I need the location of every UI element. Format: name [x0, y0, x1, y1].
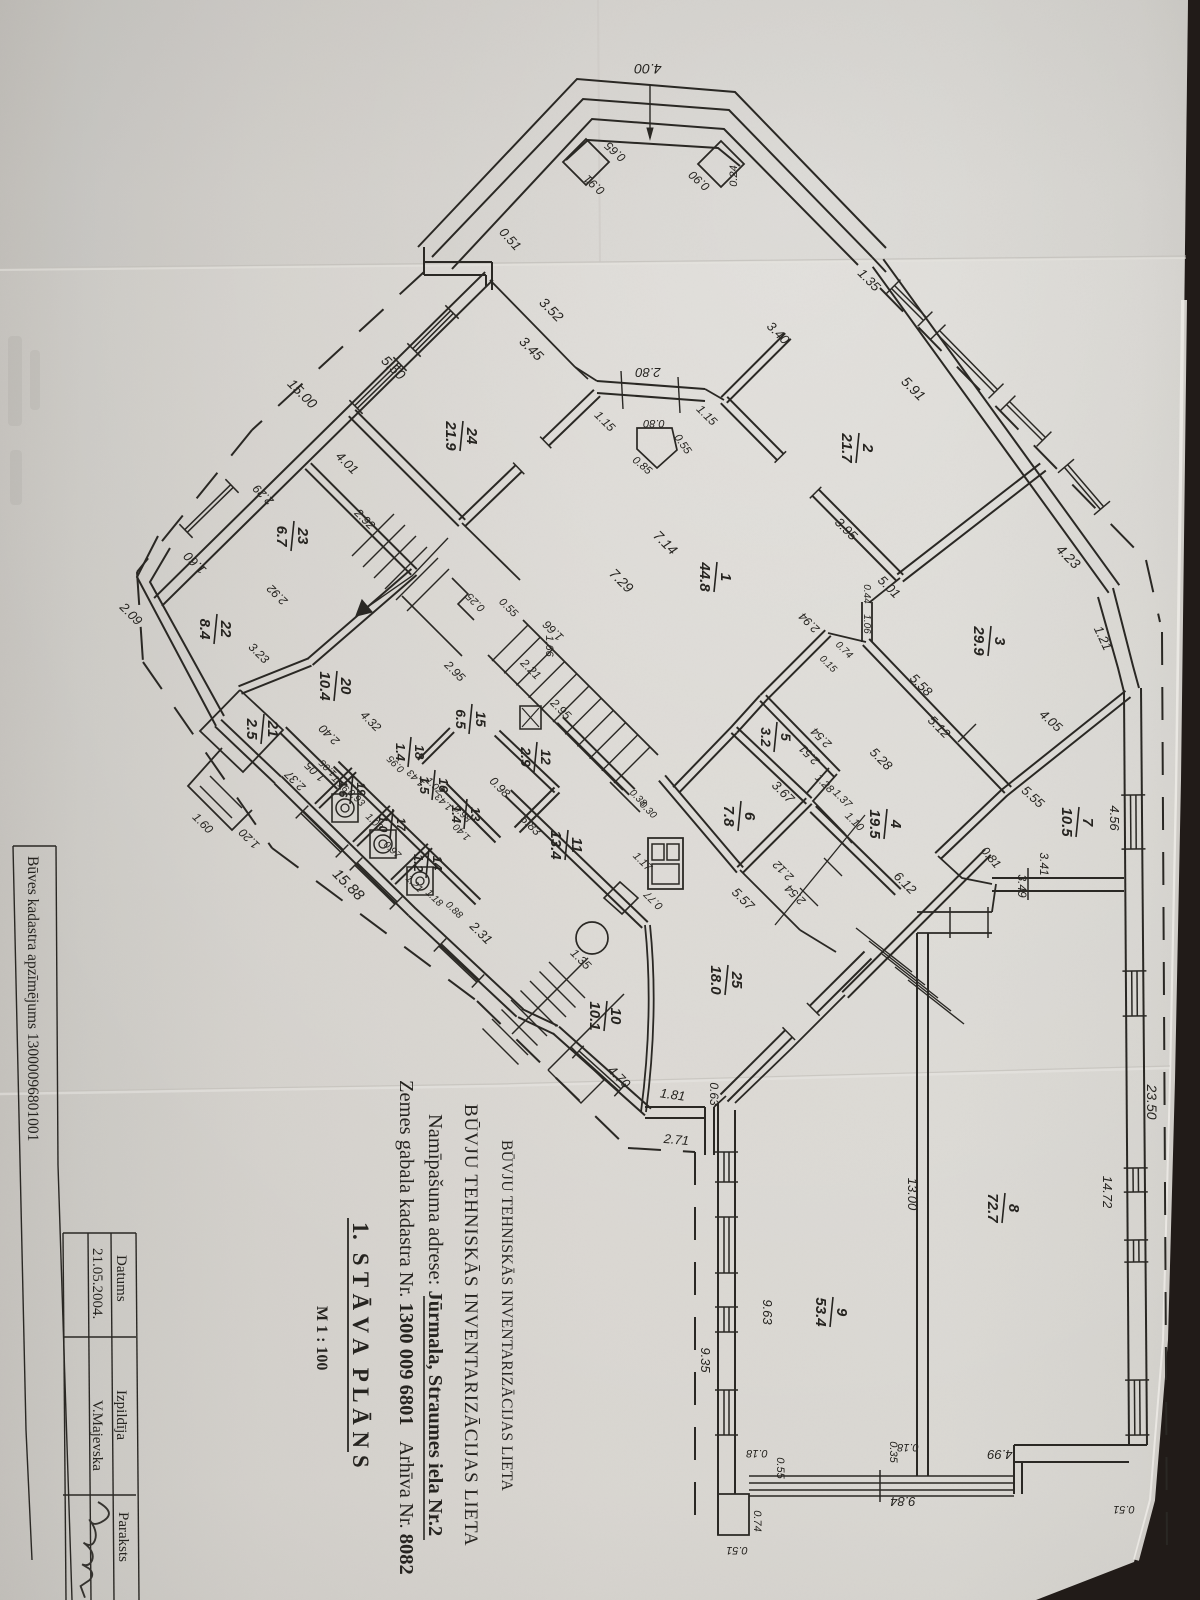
svg-text:21.7: 21.7: [838, 432, 855, 463]
svg-text:21: 21: [264, 720, 281, 738]
svg-text:18.0: 18.0: [707, 965, 724, 995]
svg-text:M 1 : 100: M 1 : 100: [313, 1306, 330, 1370]
svg-text:2.80: 2.80: [635, 365, 662, 380]
svg-text:8.4: 8.4: [196, 619, 213, 641]
svg-text:0.80: 0.80: [642, 417, 664, 429]
svg-text:1. S T Ā V A P L Ā N S: 1. S T Ā V A P L Ā N S: [348, 1222, 373, 1468]
svg-text:3: 3: [991, 637, 1008, 646]
svg-text:10.4: 10.4: [316, 671, 333, 701]
svg-text:16: 16: [436, 778, 451, 793]
svg-text:1.5: 1.5: [417, 776, 432, 795]
svg-text:2: 2: [859, 443, 876, 453]
svg-text:0.44: 0.44: [861, 584, 872, 604]
svg-text:21.9: 21.9: [442, 420, 459, 451]
svg-text:22: 22: [217, 620, 234, 638]
svg-text:9.63: 9.63: [760, 1299, 775, 1325]
svg-text:3.41: 3.41: [1037, 852, 1051, 875]
svg-text:2.71: 2.71: [662, 1131, 690, 1148]
svg-text:1.4: 1.4: [393, 743, 408, 762]
svg-text:25: 25: [728, 971, 745, 989]
svg-text:6: 6: [741, 812, 758, 821]
svg-text:Zemes gabala kadastra Nr. 1300: Zemes gabala kadastra Nr. 1300 009 6801 …: [395, 1080, 417, 1575]
svg-text:1: 1: [717, 573, 734, 581]
svg-text:Izpildīja: Izpildīja: [113, 1390, 129, 1440]
svg-text:0.24: 0.24: [728, 165, 740, 186]
svg-text:13: 13: [468, 807, 483, 822]
svg-text:72.7: 72.7: [984, 1193, 1001, 1223]
svg-text:2.9: 2.9: [518, 746, 534, 767]
svg-text:0.18: 0.18: [745, 1447, 767, 1459]
svg-text:8: 8: [1005, 1204, 1022, 1213]
svg-text:BŪVJU TEHNISKĀS INVENTARIZĀCIJ: BŪVJU TEHNISKĀS INVENTARIZĀCIJAS LIETA: [460, 1104, 481, 1546]
svg-text:6.5: 6.5: [453, 709, 469, 729]
svg-text:1.4: 1.4: [449, 805, 464, 824]
svg-text:2.5: 2.5: [243, 718, 260, 741]
svg-text:15: 15: [473, 711, 489, 727]
svg-text:1.06: 1.06: [861, 614, 872, 634]
svg-text:24: 24: [463, 427, 480, 445]
svg-text:20: 20: [337, 677, 354, 695]
svg-text:19.5: 19.5: [866, 809, 883, 839]
svg-text:10.5: 10.5: [1058, 807, 1075, 837]
svg-text:3.2: 3.2: [758, 727, 774, 747]
svg-text:1.66: 1.66: [543, 635, 555, 657]
svg-text:18: 18: [412, 745, 427, 760]
svg-text:4.56: 4.56: [1107, 805, 1122, 831]
svg-text:17: 17: [394, 817, 408, 832]
svg-text:14.72: 14.72: [1100, 1176, 1115, 1209]
svg-text:4.99: 4.99: [987, 1447, 1012, 1462]
svg-text:9: 9: [833, 1308, 850, 1317]
svg-text:10: 10: [607, 1008, 624, 1025]
svg-text:53.4: 53.4: [812, 1297, 829, 1327]
svg-text:1.0: 1.0: [376, 816, 390, 833]
svg-text:1.6: 1.6: [336, 781, 350, 798]
svg-text:10.1: 10.1: [586, 1001, 603, 1030]
svg-text:BŪVJU TEHNISKĀS INVENTARIZĀCIJ: BŪVJU TEHNISKĀS INVENTARIZĀCIJAS LIETA: [498, 1140, 515, 1492]
svg-text:21.05.2004.: 21.05.2004.: [89, 1248, 105, 1319]
svg-text:5: 5: [778, 733, 794, 741]
svg-text:9.35: 9.35: [698, 1347, 713, 1373]
svg-text:19: 19: [354, 782, 368, 796]
svg-text:44.8: 44.8: [696, 561, 713, 592]
svg-text:23.50: 23.50: [1144, 1083, 1160, 1119]
svg-text:V.Majevska: V.Majevska: [89, 1400, 105, 1471]
svg-text:7: 7: [1079, 818, 1096, 827]
svg-text:12: 12: [538, 749, 554, 765]
svg-text:14: 14: [430, 856, 445, 871]
svg-text:0.51: 0.51: [726, 1544, 747, 1556]
svg-text:0.35: 0.35: [887, 1441, 899, 1463]
svg-text:0.55: 0.55: [774, 1457, 786, 1479]
svg-text:1.2: 1.2: [411, 854, 426, 873]
svg-text:0.51: 0.51: [1113, 1503, 1134, 1515]
svg-text:29.9: 29.9: [970, 625, 987, 656]
svg-text:4.00: 4.00: [634, 61, 661, 77]
svg-text:7.8: 7.8: [720, 806, 737, 828]
svg-text:Paraksts: Paraksts: [115, 1512, 131, 1562]
svg-text:0.74: 0.74: [751, 1510, 763, 1531]
svg-text:Namīpašuma adrese: Jūrmala, St: Namīpašuma adrese: Jūrmala, Straumes iel…: [424, 1114, 446, 1536]
svg-text:Datums: Datums: [113, 1255, 129, 1302]
svg-text:23: 23: [294, 527, 311, 545]
svg-text:Būves kadastra apzīmējums 1300: Būves kadastra apzīmējums 13000096801001: [24, 856, 41, 1141]
svg-text:13.4: 13.4: [547, 830, 564, 860]
svg-text:9.84: 9.84: [890, 1494, 915, 1509]
svg-text:13.00: 13.00: [905, 1178, 920, 1211]
svg-text:0.63: 0.63: [707, 1082, 721, 1106]
svg-text:6.7: 6.7: [273, 526, 290, 548]
svg-text:11: 11: [568, 837, 585, 853]
svg-text:3.49: 3.49: [1015, 874, 1029, 898]
svg-text:4: 4: [887, 819, 904, 829]
